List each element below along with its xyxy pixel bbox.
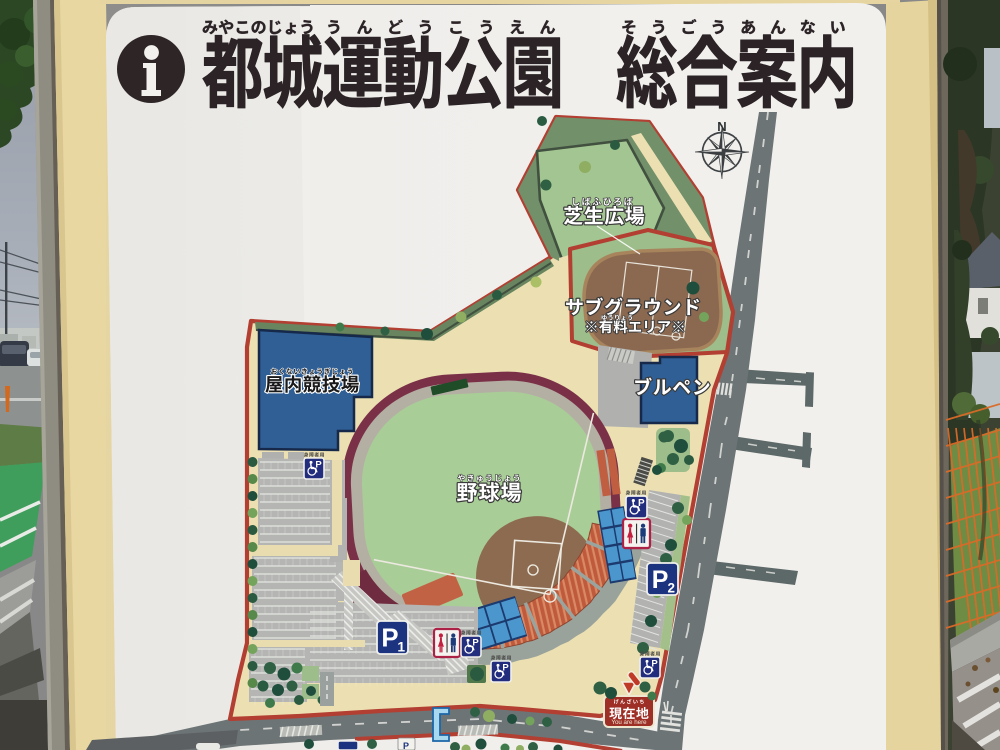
svg-text:P: P [403, 741, 409, 750]
svg-text:P: P [315, 459, 322, 470]
svg-text:P: P [652, 566, 669, 594]
svg-text:You are here: You are here [611, 719, 647, 726]
svg-text:2: 2 [667, 580, 674, 595]
svg-text:N: N [717, 119, 726, 134]
svg-text:P: P [472, 637, 479, 648]
svg-text:P: P [381, 625, 398, 653]
svg-text:P: P [502, 662, 509, 673]
svg-text:P: P [651, 658, 658, 669]
svg-text:1: 1 [397, 638, 405, 654]
